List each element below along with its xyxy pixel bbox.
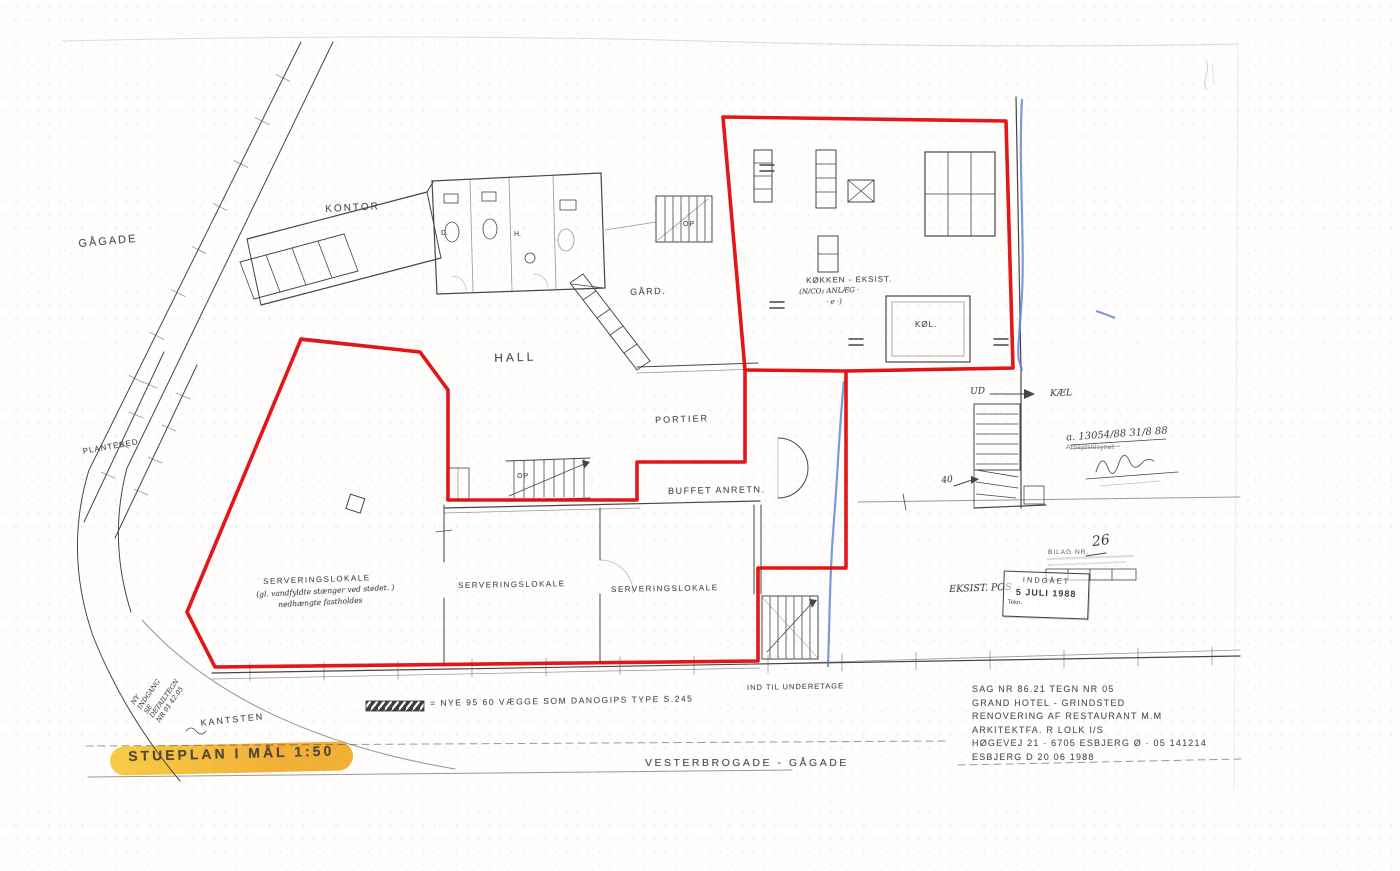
- gaard-stair-skylight: [570, 196, 758, 373]
- label-room-portier: PORTIER: [655, 413, 709, 425]
- kitchen-fixtures: [754, 150, 1008, 362]
- bilag-number: 26: [1091, 532, 1111, 550]
- bilag-stamp: BILAG NR. 26: [1048, 541, 1089, 559]
- label-koekken-note-2: · e ·): [826, 297, 842, 306]
- title-block: SAG NR 86.21 TEGN NR 05GRAND HOTEL - GRI…: [972, 684, 1252, 765]
- label-stair-op-hall: OP: [517, 473, 529, 480]
- bilag-label: BILAG NR.: [1048, 549, 1089, 556]
- label-room-hall: HALL: [494, 350, 536, 365]
- label-stair-op-gaard: OP: [683, 221, 695, 228]
- scan-edge-artifacts: [62, 37, 1238, 790]
- received-stamp-footer: Tekn.: [1008, 600, 1088, 609]
- title-block-line-5: HØGEVEJ 21 · 6705 ESBJERG Ø · 05 141214: [972, 738, 1252, 748]
- label-street-vesterbrogade: VESTERBROGADE - GÅGADE: [645, 757, 849, 769]
- title-block-line-1: SAG NR 86.21 TEGN NR 05: [972, 684, 1252, 694]
- label-room-serveringslokale-3: SERVERINGSLOKALE: [611, 583, 719, 594]
- hall-interior: [301, 341, 818, 666]
- label-room-buffet-anretn: BUFFET ANRETN.: [668, 484, 766, 496]
- received-stamp-header: INDGÅET: [1004, 575, 1088, 587]
- label-wc-h: H.: [514, 231, 521, 238]
- label-ind-til-underetage: IND TIL UNDERETAGE: [747, 681, 844, 692]
- label-wc-d: D.: [441, 230, 448, 237]
- title-block-line-3: RENOVERING AF RESTAURANT M.M: [972, 711, 1252, 721]
- label-room-koekken: KØKKEN - EKSIST.: [806, 274, 892, 285]
- received-stamp: INDGÅET 5 JULI 1988 Tekn.: [1002, 571, 1090, 620]
- title-block-line-2: GRAND HOTEL - GRINDSTED: [972, 698, 1252, 708]
- title-block-line-4: ARKITEKTFA. R LOLK I/S: [972, 725, 1252, 735]
- approval-agency: Arbejdstilsynet: [1066, 444, 1196, 451]
- received-stamp-date: 5 JULI 1988: [1004, 587, 1088, 600]
- label-kael: KÆL: [1050, 388, 1072, 399]
- scanned-floor-plan-sheet: GÅGADEKONTORPLANTEBEDGÅRD.HALLPORTIERBUF…: [0, 0, 1400, 871]
- label-note-40: 40: [941, 475, 953, 486]
- label-exit-ud: UD: [970, 386, 985, 397]
- approval-stamp: a. 13054/88 31/8 88 Arbejdstilsynet: [1066, 428, 1196, 451]
- red-highlight-outline: [187, 117, 1013, 667]
- label-room-gaard: GÅRD.: [630, 286, 666, 297]
- title-block-line-6: ESBJERG D 20 06 1988: [972, 752, 1252, 762]
- label-room-koel: KØL.: [915, 320, 937, 329]
- label-room-serveringslokale-2: SERVERINGSLOKALE: [458, 579, 566, 590]
